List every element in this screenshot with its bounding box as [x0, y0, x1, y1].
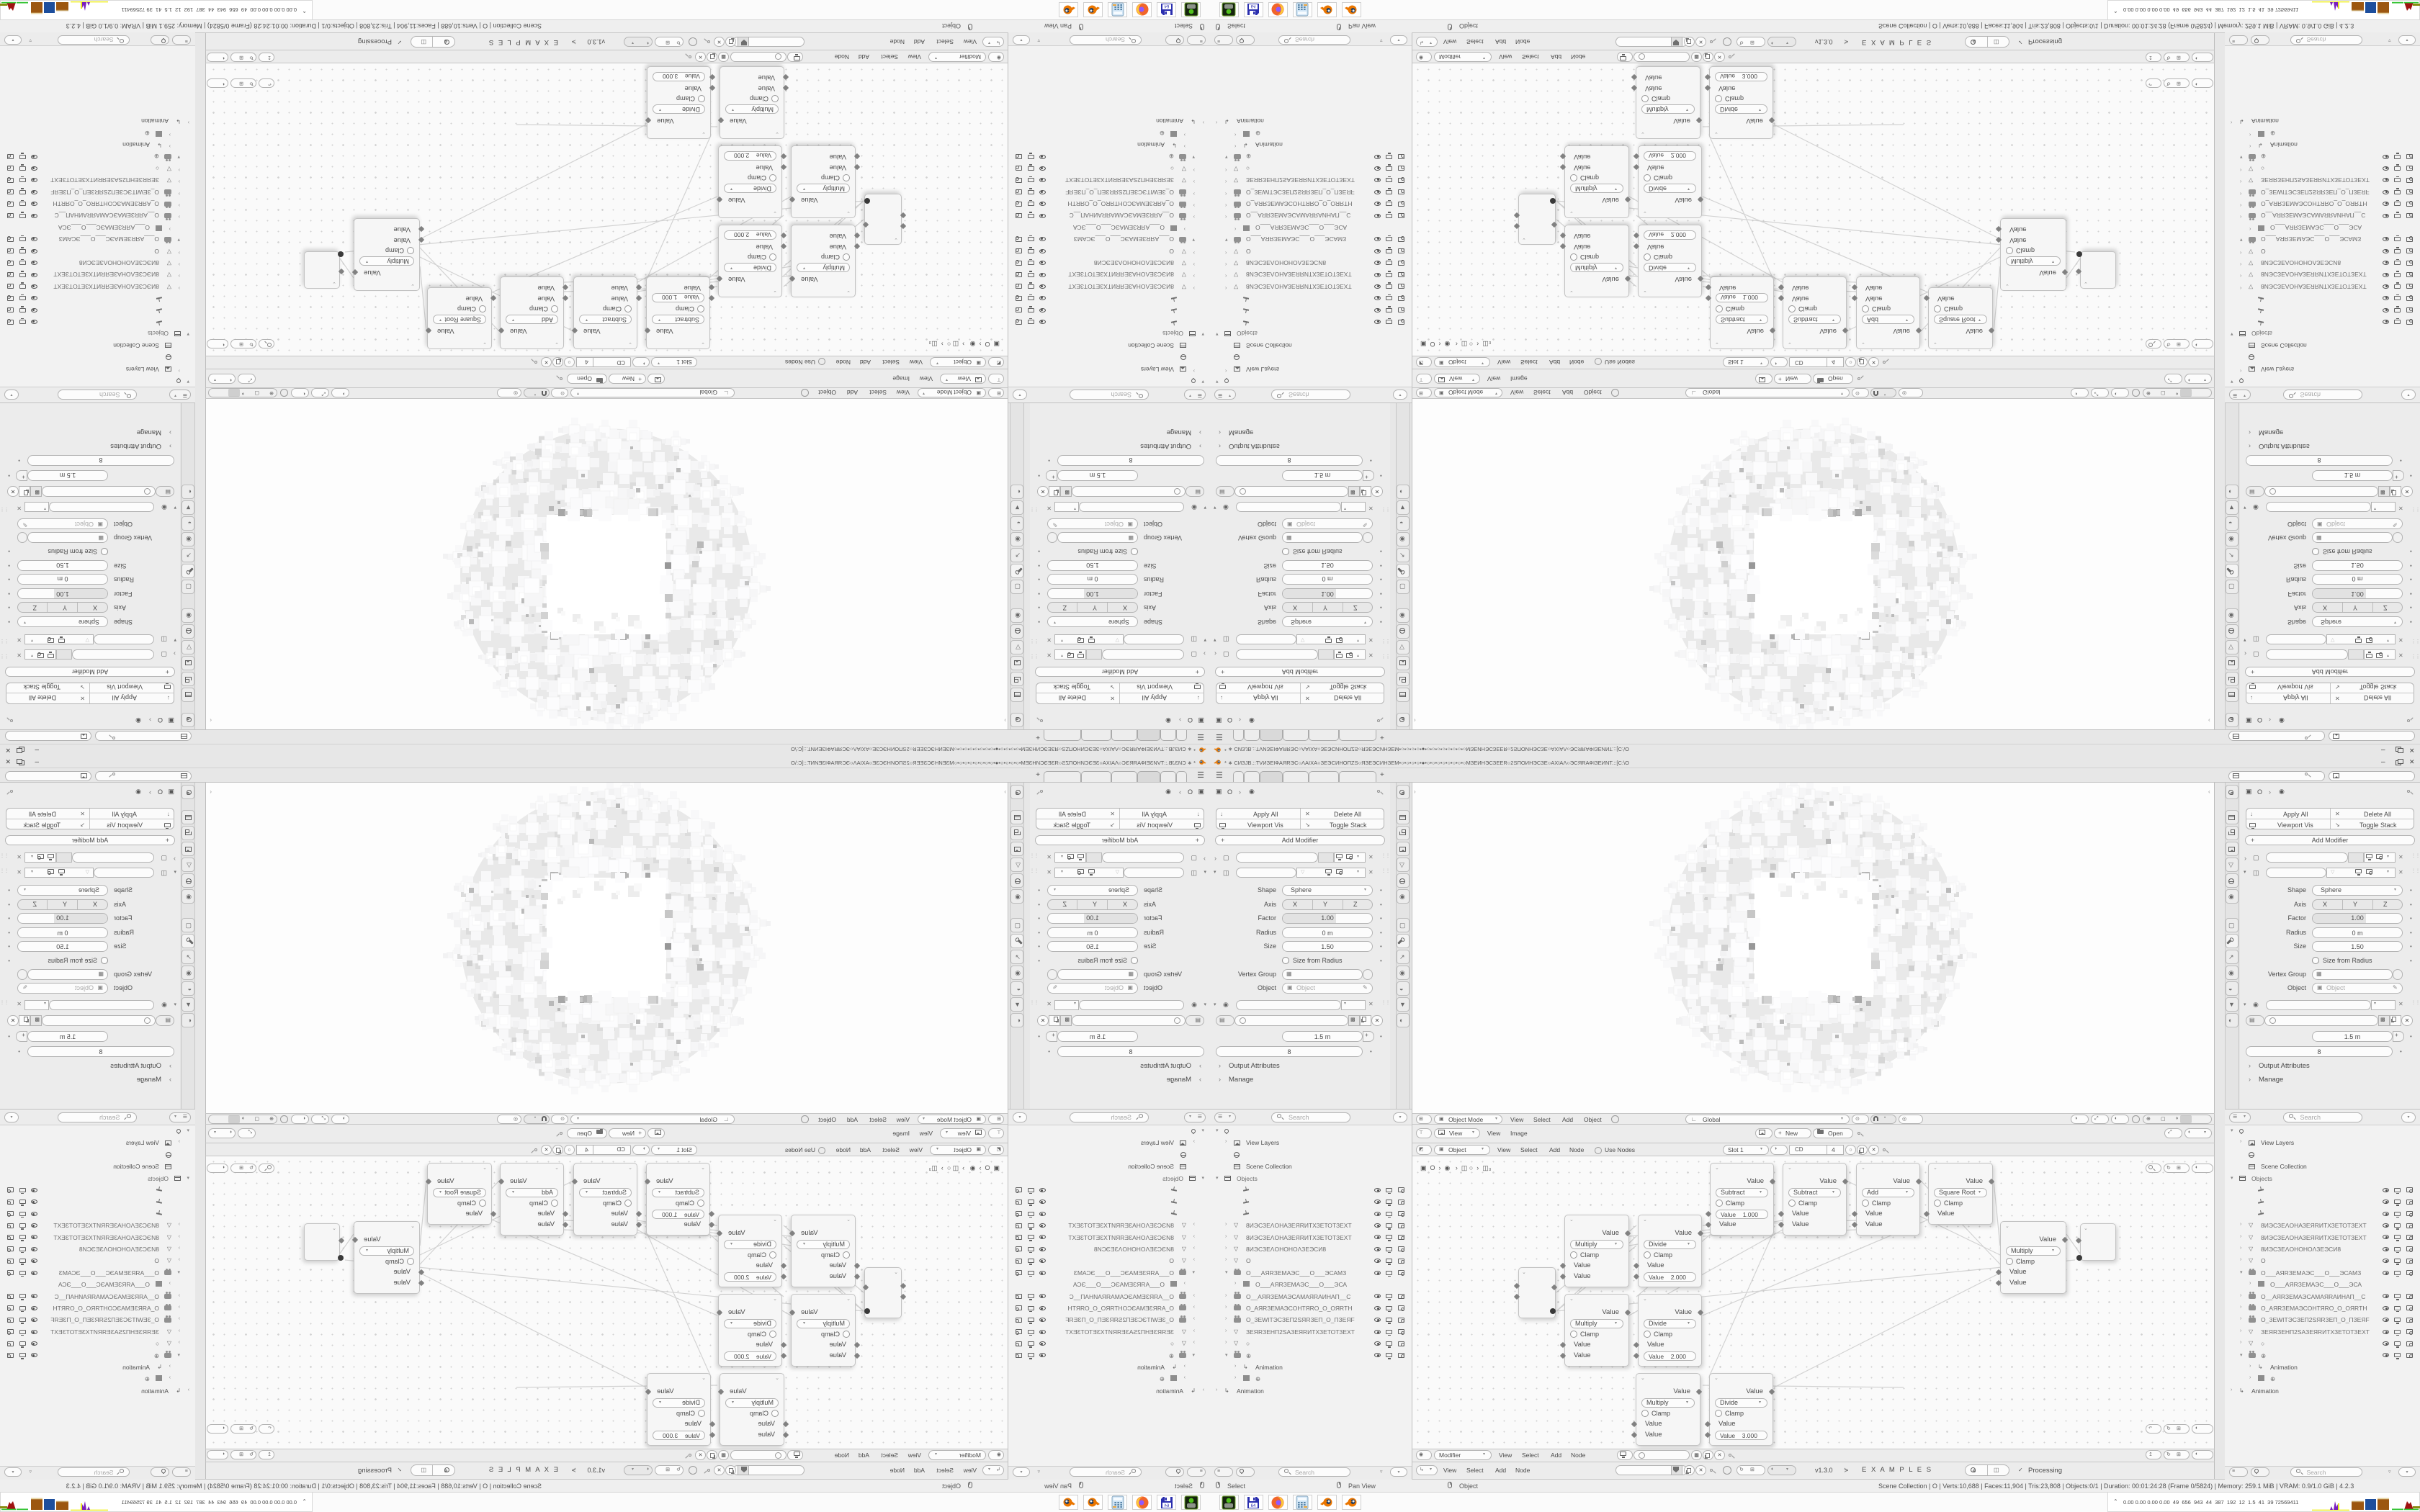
svg-text:64: 64	[1164, 4, 1169, 8]
svg-text:64: 64	[1251, 1504, 1256, 1508]
svg-text:64: 64	[1251, 4, 1256, 8]
svg-text:64: 64	[1164, 1504, 1169, 1508]
